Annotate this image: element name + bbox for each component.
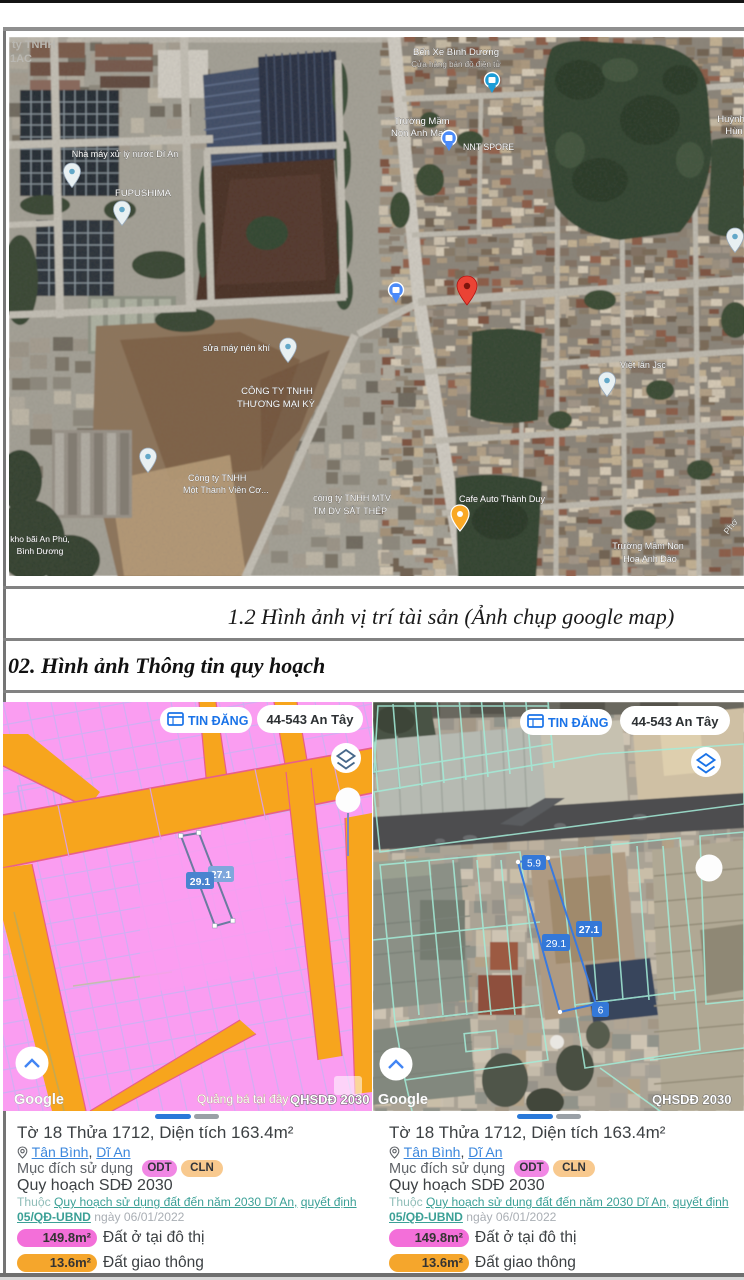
- svg-text:sửa máy nén khí: sửa máy nén khí: [203, 343, 271, 353]
- svg-text:Một Thành Viên Cơ...: Một Thành Viên Cơ...: [183, 485, 269, 495]
- svg-text:Trường Mầm: Trường Mầm: [394, 116, 450, 127]
- svg-text:FUPUSHIMA: FUPUSHIMA: [115, 188, 172, 199]
- svg-text:Hùn: Hùn: [725, 126, 742, 137]
- svg-text:1AC: 1AC: [10, 53, 32, 65]
- svg-text:44-543 An Tây: 44-543 An Tây: [632, 714, 720, 729]
- svg-text:TM DV SẮT THÉP: TM DV SẮT THÉP: [313, 506, 387, 516]
- svg-text:29.1: 29.1: [546, 938, 567, 950]
- svg-text:công ty TNHH MTV: công ty TNHH MTV: [313, 493, 391, 503]
- svg-text:TIN ĐĂNG: TIN ĐĂNG: [548, 715, 608, 730]
- svg-text:Huỳnh: Huỳnh: [717, 114, 744, 125]
- svg-text:CÔNG TY TNHH: CÔNG TY TNHH: [241, 386, 313, 397]
- svg-text:Hoa Anh Đào: Hoa Anh Đào: [623, 554, 677, 564]
- svg-text:Cửa hàng bán đồ điện tử: Cửa hàng bán đồ điện tử: [411, 60, 501, 69]
- svg-text:Non Anh Mai: Non Anh Mai: [391, 128, 445, 139]
- svg-text:6: 6: [598, 1006, 604, 1017]
- svg-text:THƯƠNG MẠI KỲ: THƯƠNG MẠI KỲ: [237, 399, 316, 410]
- svg-text:27.1: 27.1: [579, 924, 600, 936]
- svg-text:Cafe Auto Thành Duy: Cafe Auto Thành Duy: [459, 494, 545, 504]
- svg-text:Bình Dương: Bình Dương: [17, 546, 64, 556]
- svg-text:Trường Mầm Non: Trường Mầm Non: [612, 541, 684, 551]
- svg-text:Google: Google: [378, 1092, 428, 1108]
- svg-text:Nhà máy xử lý nước Dĩ An: Nhà máy xử lý nước Dĩ An: [72, 149, 178, 159]
- svg-text:29.1: 29.1: [190, 876, 211, 888]
- svg-text:QHSDĐ 2030: QHSDĐ 2030: [290, 1092, 369, 1107]
- svg-text:kho bãi An Phú,: kho bãi An Phú,: [10, 534, 70, 544]
- svg-text:Bến Xe Bình Dương: Bến Xe Bình Dương: [413, 47, 499, 58]
- svg-text:5.9: 5.9: [527, 859, 541, 870]
- svg-text:Quảng bá tại đây: Quảng bá tại đây: [197, 1092, 288, 1106]
- svg-text:NNT SPORE: NNT SPORE: [463, 142, 514, 152]
- svg-text:QHSDĐ 2030: QHSDĐ 2030: [652, 1092, 731, 1107]
- svg-text:ty TNHH: ty TNHH: [12, 39, 55, 51]
- svg-text:Công ty TNHH: Công ty TNHH: [188, 473, 246, 483]
- svg-text:Việt lân Jsc: Việt lân Jsc: [620, 360, 666, 370]
- svg-text:Google: Google: [14, 1092, 64, 1108]
- svg-text:44-543 An Tây: 44-543 An Tây: [267, 712, 355, 727]
- svg-text:TIN ĐĂNG: TIN ĐĂNG: [188, 713, 248, 728]
